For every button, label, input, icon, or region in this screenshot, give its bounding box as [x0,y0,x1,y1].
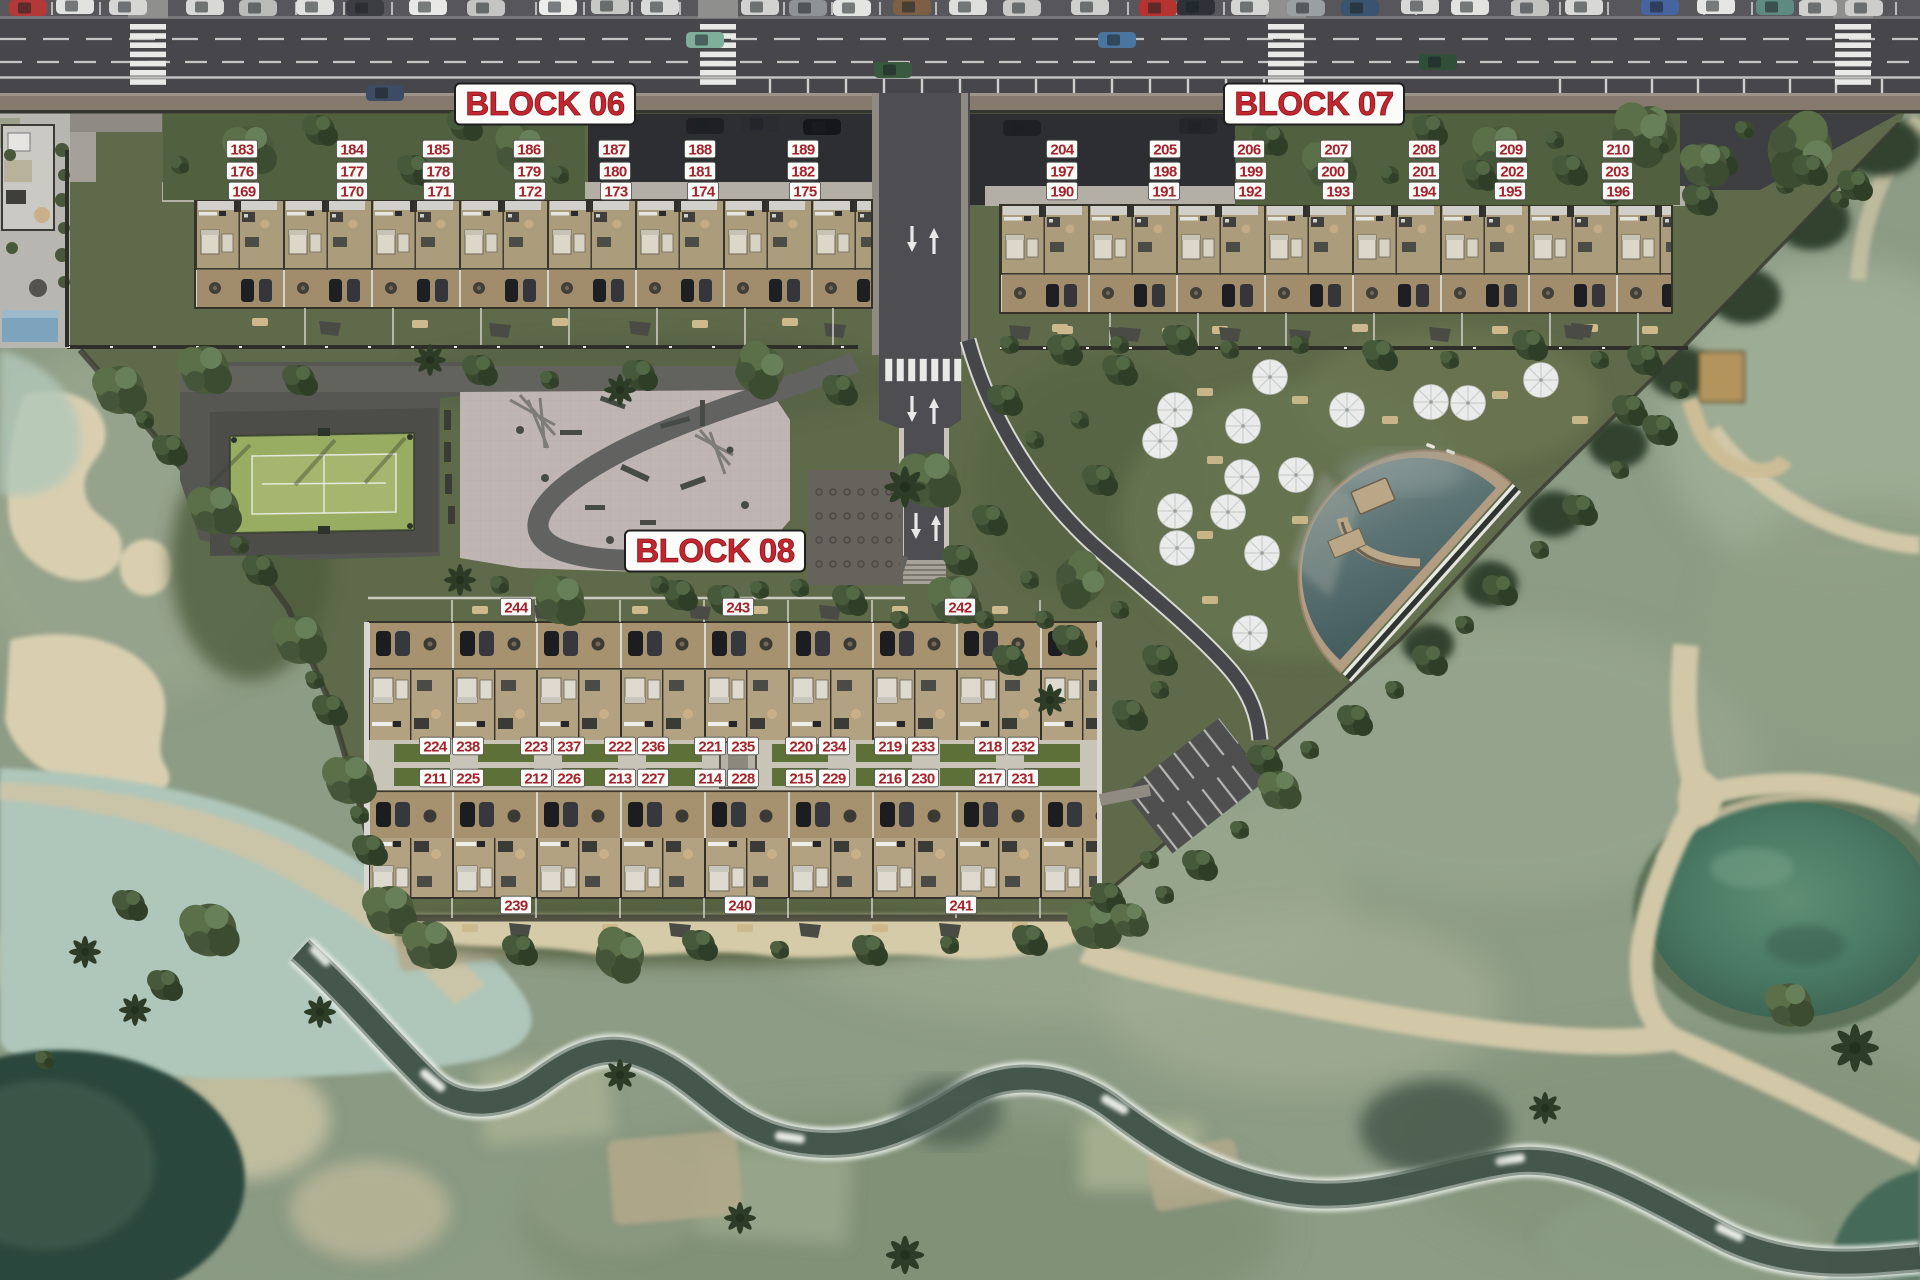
svg-text:193: 193 [1326,183,1349,200]
svg-text:231: 231 [1011,770,1034,787]
svg-text:174: 174 [691,183,715,200]
svg-text:239: 239 [504,897,527,914]
svg-text:216: 216 [878,770,901,787]
svg-text:191: 191 [1152,183,1175,200]
svg-text:244: 244 [504,599,528,616]
svg-text:243: 243 [726,599,749,616]
svg-text:214: 214 [698,770,722,787]
svg-text:229: 229 [822,770,845,787]
svg-text:188: 188 [688,141,711,158]
svg-text:200: 200 [1321,163,1344,180]
svg-text:242: 242 [948,599,971,616]
svg-text:218: 218 [978,738,1001,755]
svg-text:203: 203 [1605,163,1628,180]
svg-text:177: 177 [340,163,363,180]
svg-text:208: 208 [1412,141,1435,158]
svg-text:240: 240 [728,897,751,914]
svg-text:189: 189 [791,141,814,158]
svg-text:236: 236 [641,738,664,755]
svg-text:169: 169 [232,183,255,200]
svg-text:207: 207 [1324,141,1347,158]
svg-text:222: 222 [608,738,631,755]
svg-text:230: 230 [911,770,934,787]
svg-text:182: 182 [791,163,814,180]
svg-text:186: 186 [517,141,540,158]
svg-text:206: 206 [1237,141,1260,158]
svg-text:204: 204 [1050,141,1074,158]
svg-text:192: 192 [1238,183,1261,200]
svg-text:226: 226 [557,770,580,787]
svg-text:184: 184 [340,141,364,158]
svg-text:228: 228 [731,770,754,787]
svg-text:210: 210 [1606,141,1629,158]
svg-text:190: 190 [1050,183,1073,200]
svg-text:205: 205 [1153,141,1176,158]
svg-text:201: 201 [1412,163,1435,180]
svg-text:225: 225 [456,770,479,787]
svg-text:199: 199 [1239,163,1262,180]
svg-text:227: 227 [641,770,664,787]
svg-text:220: 220 [789,738,812,755]
svg-text:187: 187 [602,141,625,158]
svg-text:238: 238 [456,738,479,755]
svg-text:234: 234 [822,738,846,755]
svg-text:237: 237 [557,738,580,755]
svg-text:235: 235 [731,738,754,755]
svg-text:185: 185 [426,141,449,158]
svg-text:171: 171 [427,183,450,200]
svg-text:BLOCK 06: BLOCK 06 [465,85,624,122]
svg-text:173: 173 [604,183,627,200]
svg-text:233: 233 [911,738,934,755]
svg-text:179: 179 [517,163,540,180]
svg-text:BLOCK 08: BLOCK 08 [635,532,794,569]
svg-text:224: 224 [423,738,447,755]
svg-text:213: 213 [608,770,631,787]
svg-text:180: 180 [603,163,626,180]
svg-text:BLOCK 07: BLOCK 07 [1234,85,1393,122]
svg-text:198: 198 [1153,163,1176,180]
svg-text:202: 202 [1500,163,1523,180]
svg-text:211: 211 [424,770,447,787]
svg-text:209: 209 [1499,141,1522,158]
svg-text:170: 170 [340,183,363,200]
svg-text:212: 212 [524,770,547,787]
svg-text:196: 196 [1606,183,1629,200]
svg-text:194: 194 [1412,183,1436,200]
svg-text:183: 183 [230,141,253,158]
svg-text:221: 221 [698,738,721,755]
svg-text:172: 172 [518,183,541,200]
svg-text:217: 217 [978,770,1001,787]
svg-text:197: 197 [1050,163,1073,180]
svg-text:176: 176 [230,163,253,180]
svg-text:195: 195 [1498,183,1521,200]
svg-text:223: 223 [524,738,547,755]
svg-text:219: 219 [878,738,901,755]
svg-text:215: 215 [789,770,812,787]
svg-text:241: 241 [949,897,972,914]
svg-text:178: 178 [426,163,449,180]
svg-text:181: 181 [688,163,711,180]
svg-text:175: 175 [793,183,816,200]
svg-text:232: 232 [1011,738,1034,755]
